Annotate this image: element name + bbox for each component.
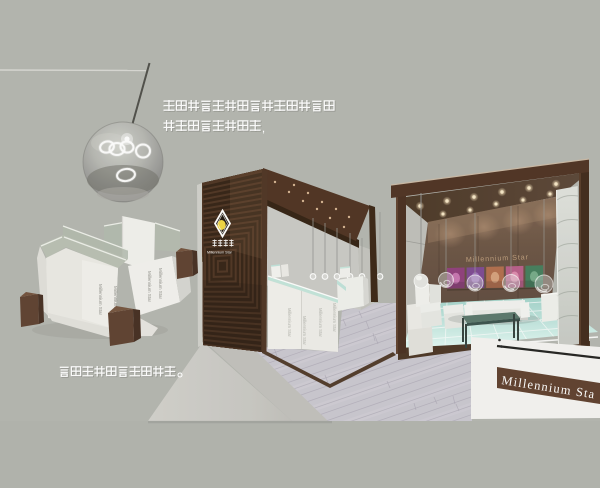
svg-text:,: , xyxy=(262,123,265,135)
